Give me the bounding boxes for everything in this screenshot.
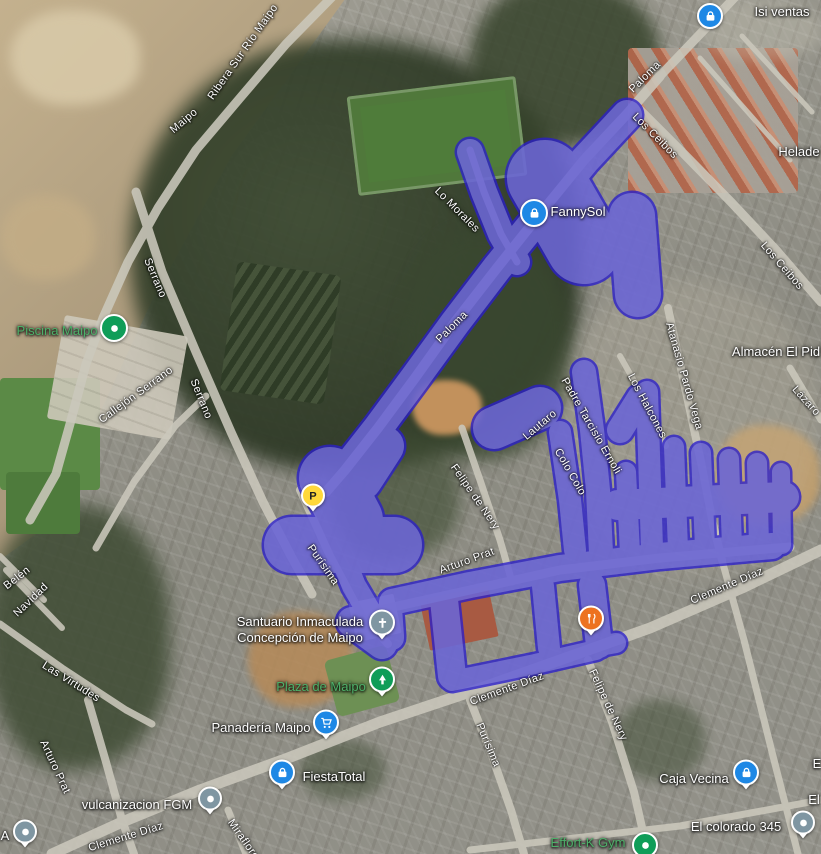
poi-dot-icon bbox=[13, 820, 37, 844]
vulcanizacion-fgm-marker[interactable] bbox=[198, 787, 222, 820]
fannysol-marker[interactable] bbox=[520, 199, 548, 227]
poi-dot-icon bbox=[632, 832, 658, 854]
parking-icon: P bbox=[301, 484, 325, 508]
marker-pin-point bbox=[277, 784, 287, 795]
tree-icon bbox=[369, 667, 395, 693]
marker-pin-point bbox=[20, 842, 30, 853]
church-cross-icon bbox=[369, 610, 395, 636]
isi-ventas-marker[interactable] bbox=[697, 3, 723, 29]
poi-dot-icon bbox=[198, 787, 222, 811]
marker-pin-point bbox=[205, 809, 215, 820]
marker-pin-point bbox=[798, 833, 808, 844]
marker-pin-point bbox=[321, 734, 331, 745]
marker-pin-point bbox=[741, 784, 751, 795]
shopping-bag-icon bbox=[269, 760, 295, 786]
a-poi-marker[interactable] bbox=[13, 820, 37, 853]
marker-pin-point bbox=[586, 630, 596, 641]
markers-layer: P bbox=[0, 0, 821, 854]
shopping-cart-icon bbox=[313, 710, 339, 736]
restaurant-icon bbox=[578, 606, 604, 632]
el-colorado-345-marker[interactable] bbox=[791, 811, 815, 844]
effort-k-gym-marker[interactable] bbox=[632, 832, 658, 854]
caja-vecina-marker[interactable] bbox=[733, 760, 759, 795]
restaurant-marker[interactable] bbox=[578, 606, 604, 641]
plaza-de-maipo-marker[interactable] bbox=[369, 667, 395, 702]
shopping-bag-icon bbox=[733, 760, 759, 786]
poi-dot-icon bbox=[100, 314, 128, 342]
santuario-church-marker[interactable] bbox=[369, 610, 395, 645]
shopping-bag-icon bbox=[697, 3, 723, 29]
panaderia-maipo-marker[interactable] bbox=[313, 710, 339, 745]
marker-pin-point bbox=[308, 506, 318, 517]
poi-dot-icon bbox=[791, 811, 815, 835]
svg-text:P: P bbox=[309, 490, 317, 502]
parking-marker[interactable]: P bbox=[301, 484, 325, 517]
map-canvas[interactable]: Ribera Sur Río MaipoMaipoSerranoSerranoC… bbox=[0, 0, 821, 854]
piscina-maipo-marker[interactable] bbox=[100, 314, 128, 342]
fiestatotal-marker[interactable] bbox=[269, 760, 295, 795]
marker-pin-point bbox=[377, 691, 387, 702]
marker-pin-point bbox=[377, 634, 387, 645]
shopping-bag-icon bbox=[520, 199, 548, 227]
